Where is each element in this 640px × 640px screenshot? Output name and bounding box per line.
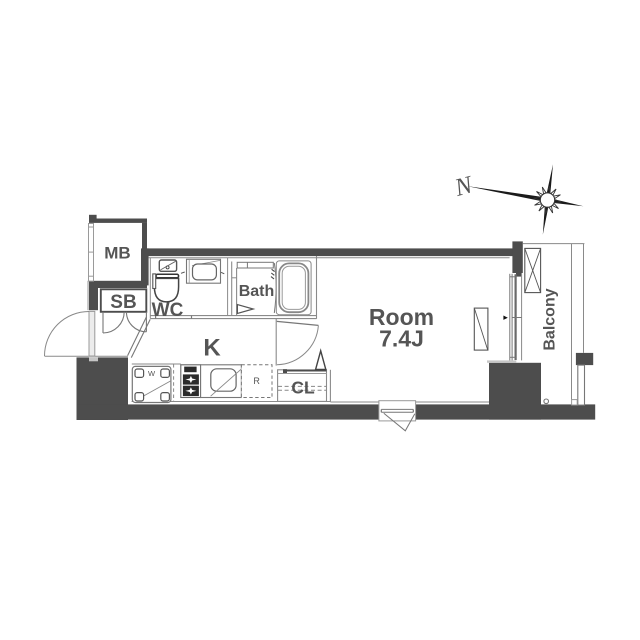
svg-text:Bath: Bath [239, 283, 275, 300]
svg-text:7.4J: 7.4J [379, 325, 424, 351]
svg-text:Balcony: Balcony [542, 288, 559, 350]
svg-text:WC: WC [152, 300, 184, 321]
svg-text:W: W [148, 369, 156, 378]
svg-text:CL: CL [291, 378, 315, 398]
svg-text:SB: SB [110, 292, 136, 313]
svg-text:K: K [203, 335, 221, 362]
svg-text:R: R [253, 376, 260, 386]
svg-text:MB: MB [104, 244, 130, 263]
